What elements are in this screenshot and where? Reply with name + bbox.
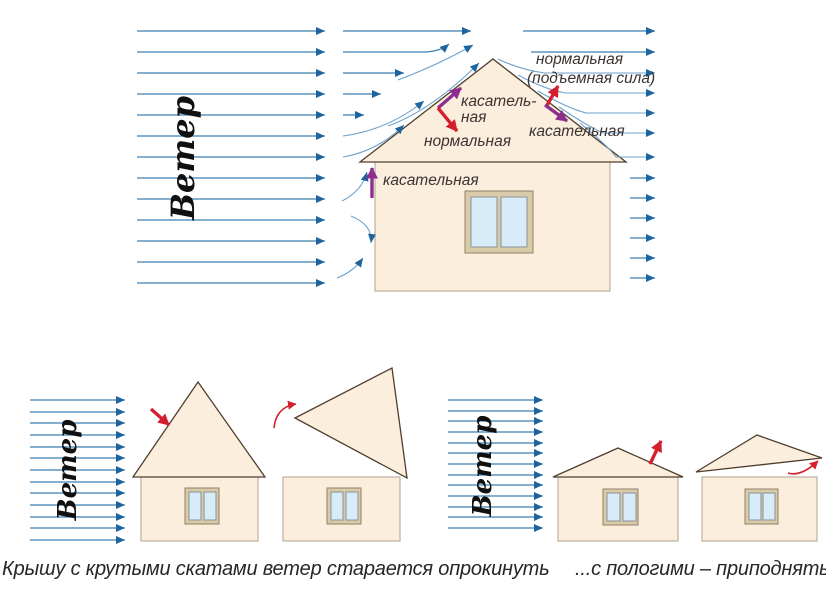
diagram-canvas <box>0 0 826 600</box>
wind-label-bottom-right: Ветер <box>468 411 498 521</box>
house-steep-roof <box>133 382 265 541</box>
house-shallow-window <box>603 489 638 525</box>
house-lifted-window <box>745 489 778 524</box>
wind-label-bottom-left: Ветер <box>53 415 83 525</box>
house-shallow-roof <box>553 441 683 541</box>
house-steep-roof-overturned <box>274 368 407 541</box>
lift-rotation-arrow <box>788 461 818 474</box>
house-steep-window <box>185 488 219 524</box>
label-normal-right-line1: нормальная <box>536 52 623 68</box>
house-shallow-roof-lifted <box>696 435 822 541</box>
overturn-rotation-arrow <box>274 404 296 428</box>
wind-push-arrow-steep-roof <box>151 409 169 425</box>
label-tangential-wall: касательная <box>383 173 479 189</box>
caption-shallow-roof: ...с пологими – приподнять <box>575 558 826 581</box>
lift-force-arrow-shallow-roof <box>650 441 661 464</box>
house-overturned-window <box>327 488 361 524</box>
wind-label-top: Ветер <box>164 88 202 228</box>
wind-forces-diagram: Ветер Ветер Ветер касатель- ная нормальн… <box>0 0 826 600</box>
label-tangential-left-line2: ная <box>461 110 486 126</box>
caption-steep-roof: Крышу с крутыми скатами ветер старается … <box>2 558 549 581</box>
house-main-window <box>465 191 533 253</box>
label-normal-right-line2: (подъемная сила) <box>527 71 655 87</box>
label-normal-left: нормальная <box>424 134 511 150</box>
label-tangential-left-line1: касатель- <box>461 94 536 110</box>
label-tangential-right: касательная <box>529 124 625 140</box>
wind-vortex-left-wall <box>337 172 371 278</box>
